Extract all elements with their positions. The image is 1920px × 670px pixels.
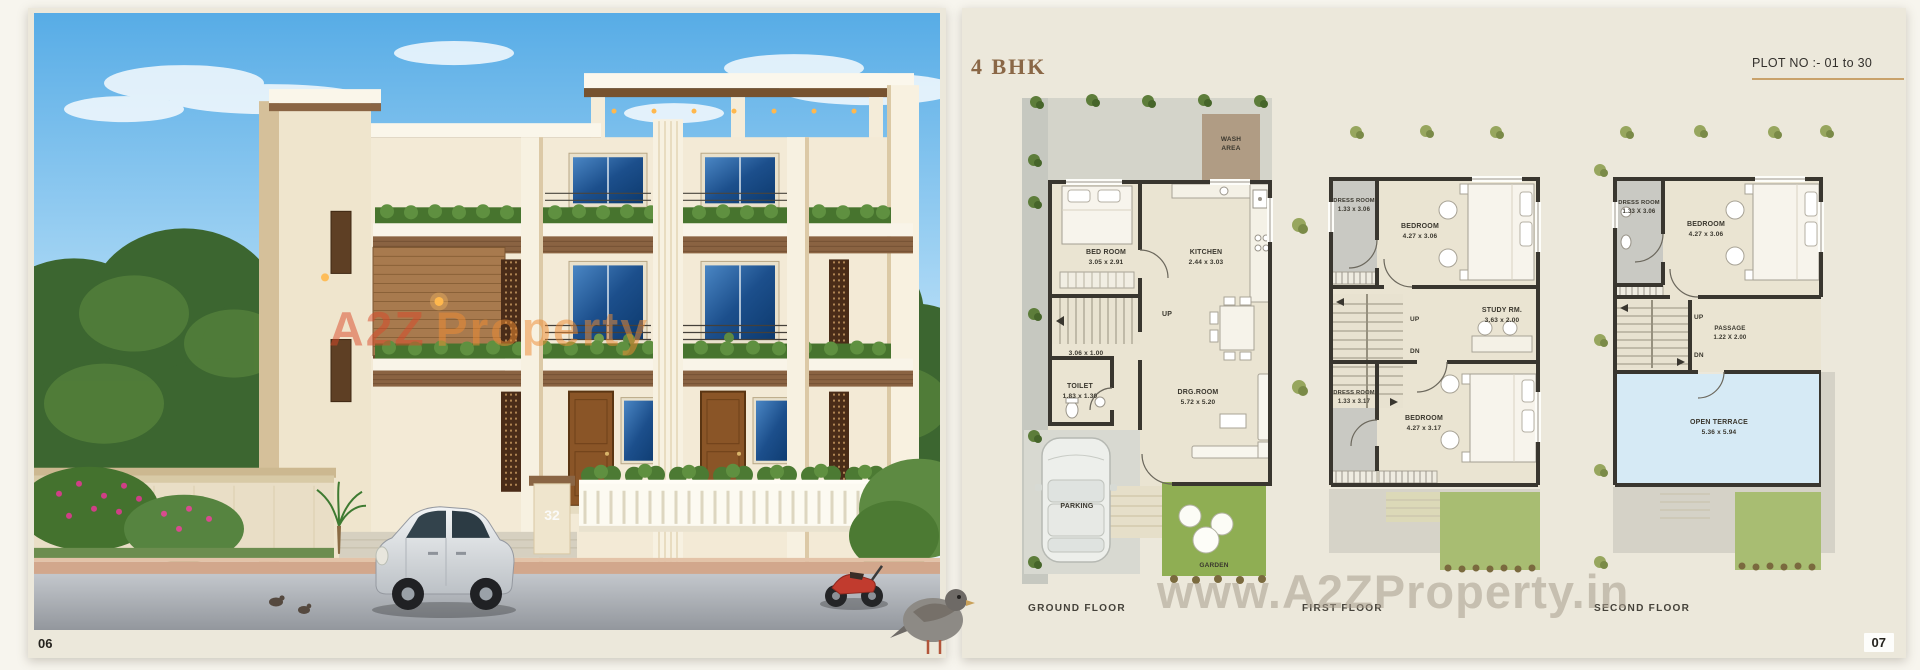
page-title: 4 BHK [971,54,1046,80]
second-floor-plan: DRESS ROOM 1.33 X 3.06 BEDROOM 4.27 x 3.… [1590,122,1835,592]
svg-text:4.27 x 3.06: 4.27 x 3.06 [1689,231,1724,238]
label-study: STUDY RM. [1482,307,1522,314]
label-dress-room: DRESS ROOM [1618,200,1660,206]
floor-label-first: FIRST FLOOR [1302,602,1383,614]
label-dress-room-2: DRESS ROOM [1333,390,1375,396]
label-dn: DN [1694,352,1704,359]
label-stair-dims: 3.06 x 1.00 [1069,350,1104,357]
label-bed-room: BED ROOM [1086,249,1126,256]
shrub-row [1170,575,1266,584]
building-photo: 32 [34,13,940,630]
svg-text:2.44 x 3.03: 2.44 x 3.03 [1189,259,1224,266]
label-up: UP [1162,311,1172,318]
garden-view [1440,492,1540,570]
building-photo-illustration: 32 [34,13,940,630]
label-kitchen: KITCHEN [1190,249,1223,256]
svg-text:5.36 x 5.94: 5.36 x 5.94 [1702,429,1737,436]
label-garden: GARDEN [1199,562,1228,569]
label-parking: PARKING [1060,503,1094,510]
label-drg-room: DRG.ROOM [1178,389,1219,396]
svg-text:AREA: AREA [1221,145,1240,152]
shrub-icon [1290,216,1310,238]
bed-icon [1462,374,1536,462]
ground-floor-plan: WASH AREA BED ROOM 3.05 x 2.91 KITCHEN 2… [1022,92,1282,592]
svg-text:1.22 X 2.00: 1.22 X 2.00 [1714,335,1747,341]
page-number-right: 07 [1864,633,1894,652]
plot-number: PLOT NO :- 01 to 30 [1752,56,1904,80]
house-number: 32 [544,507,560,523]
bed-icon [1460,184,1534,280]
bed-icon [1745,184,1819,280]
label-bedroom: BEDROOM [1687,221,1725,228]
bed-icon [1062,186,1132,244]
floor-label-second: SECOND FLOOR [1594,602,1690,614]
floor-label-ground: GROUND FLOOR [1028,602,1126,614]
label-dress-room-1: DRESS ROOM [1333,198,1375,204]
label-bedroom-2: BEDROOM [1405,415,1443,422]
left-watermark: A2ZProperty [329,304,649,357]
label-dn: DN [1410,348,1420,355]
page-number-left: 06 [38,636,52,651]
left-page: 32 [28,8,946,658]
pigeon-icon [888,558,983,666]
label-up: UP [1410,316,1420,323]
svg-text:1.83 x 1.30: 1.83 x 1.30 [1063,393,1098,400]
plan-trees [1350,125,1504,139]
label-toilet: TOILET [1067,383,1093,390]
svg-text:3.05 x 2.91: 3.05 x 2.91 [1089,259,1124,266]
svg-text:1.33 x 3.06: 1.33 x 3.06 [1338,207,1371,213]
svg-text:4.27 x 3.06: 4.27 x 3.06 [1403,233,1438,240]
svg-text:1.33 X 3.06: 1.33 X 3.06 [1623,209,1656,215]
svg-text:3.63 x 2.00: 3.63 x 2.00 [1485,317,1520,324]
right-page: 4 BHK PLOT NO :- 01 to 30 [962,8,1906,658]
label-bedroom-1: BEDROOM [1401,223,1439,230]
svg-text:4.27 x 3.17: 4.27 x 3.17 [1407,425,1442,432]
label-open-terrace: OPEN TERRACE [1690,419,1748,426]
label-wash-area: WASH [1221,136,1241,143]
gate-pillar: 32 [529,476,575,554]
shrub-icon [1290,378,1310,400]
garden-view [1735,492,1821,570]
svg-text:5.72 x 5.20: 5.72 x 5.20 [1181,399,1216,406]
label-passage: PASSAGE [1714,325,1745,332]
first-floor-plan: DRESS ROOM 1.33 x 3.06 BEDROOM 4.27 x 3.… [1322,122,1557,592]
svg-text:1.33 x 3.17: 1.33 x 3.17 [1338,399,1371,405]
label-up: UP [1694,314,1704,321]
car-top-icon [1035,438,1117,562]
